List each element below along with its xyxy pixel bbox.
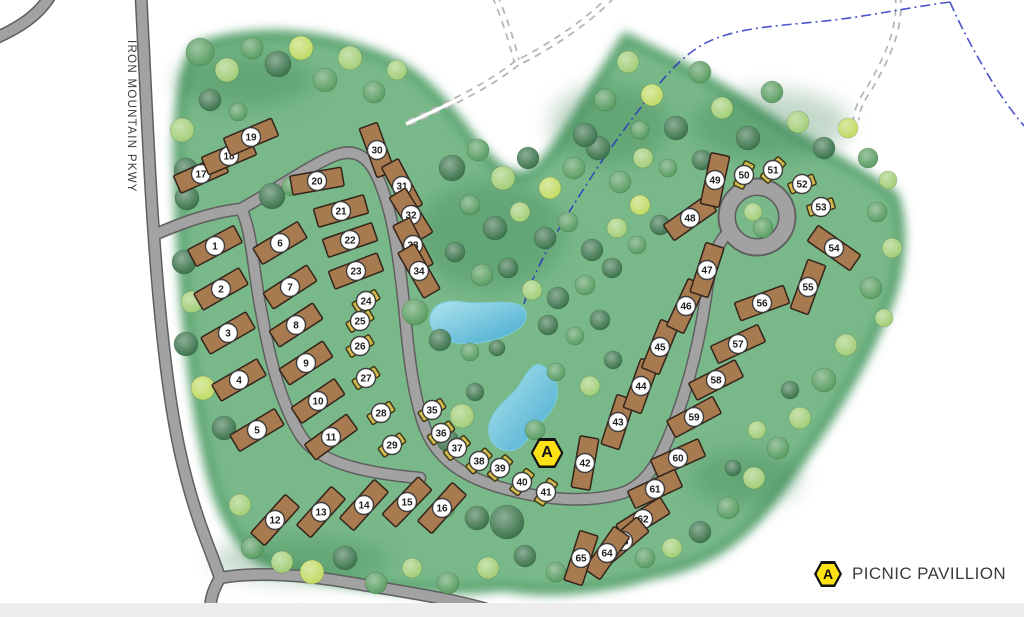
site-number: 13 [315, 508, 327, 519]
tree [628, 236, 646, 254]
site-number: 65 [575, 554, 587, 565]
tree [689, 521, 711, 543]
site-number: 41 [540, 488, 552, 499]
site-number: 12 [269, 516, 281, 527]
tree [717, 497, 739, 519]
site-number: 50 [738, 171, 750, 182]
site-number: 5 [254, 426, 260, 437]
tree [813, 137, 835, 159]
tree [662, 538, 682, 558]
site-number: 43 [612, 418, 624, 429]
tree [781, 381, 799, 399]
stream [950, 2, 1024, 128]
site-number: 64 [601, 549, 613, 560]
tree [450, 404, 474, 428]
tree [229, 103, 247, 121]
tree [594, 89, 616, 111]
site-number: 44 [635, 382, 647, 393]
site-number: 16 [436, 504, 448, 515]
site-number: 2 [218, 285, 224, 296]
tree [659, 159, 677, 177]
site-number: 7 [287, 283, 293, 294]
tree [300, 560, 324, 584]
tree [609, 171, 631, 193]
tree [607, 218, 627, 238]
tree [229, 494, 251, 516]
tree [867, 202, 887, 222]
tree [534, 227, 556, 249]
site-number: 9 [303, 359, 309, 370]
site-number: 60 [672, 454, 684, 465]
tree [617, 51, 639, 73]
tree [882, 238, 902, 258]
tree [471, 264, 493, 286]
tree [514, 545, 536, 567]
tree [489, 340, 505, 356]
site-number: 28 [375, 409, 387, 420]
site-number: 21 [335, 207, 347, 218]
site-number: 22 [344, 236, 356, 247]
site-number: 25 [354, 317, 366, 328]
site-number: 59 [688, 413, 700, 424]
tree [365, 572, 387, 594]
tree [753, 218, 773, 238]
tree [477, 557, 499, 579]
tree [437, 572, 459, 594]
tree [860, 277, 882, 299]
site-number: 58 [710, 376, 722, 387]
tree [575, 275, 595, 295]
tree [466, 383, 484, 401]
tree [875, 309, 893, 327]
tree [313, 68, 337, 92]
tree [635, 548, 655, 568]
tree [641, 84, 663, 106]
legend-label: PICNIC PAVILLION [852, 564, 1006, 584]
site-number: 40 [516, 478, 528, 489]
tree [525, 420, 545, 440]
tree [333, 546, 357, 570]
tree [602, 258, 622, 278]
tree [265, 51, 291, 77]
tree [767, 437, 789, 459]
tree [573, 123, 597, 147]
tree [191, 376, 215, 400]
tree [445, 242, 465, 262]
tree [743, 467, 765, 489]
site-number: 23 [350, 267, 362, 278]
tree [259, 183, 285, 209]
road [0, 0, 50, 38]
site-number: 61 [649, 485, 661, 496]
site-number: 37 [451, 444, 463, 455]
tree [241, 37, 263, 59]
tree [711, 97, 733, 119]
site-number: 39 [494, 464, 506, 475]
site-number: 17 [195, 170, 207, 181]
site-number: 53 [815, 203, 827, 214]
tree [566, 327, 584, 345]
tree [467, 139, 489, 161]
site-number: 14 [358, 501, 370, 512]
tree [736, 126, 760, 150]
tree [439, 155, 465, 181]
tree [725, 460, 741, 476]
site-number: 38 [473, 457, 485, 468]
tree [563, 157, 585, 179]
tree [363, 81, 385, 103]
tree [483, 216, 507, 240]
site-number: 48 [684, 214, 696, 225]
site-number: 29 [386, 441, 398, 452]
trail-core [856, 0, 898, 120]
tree [170, 118, 194, 142]
site-number: 4 [236, 376, 242, 387]
tree [835, 334, 857, 356]
tree [215, 58, 239, 82]
trail-core [517, 0, 612, 63]
tree [199, 89, 221, 111]
tree [402, 558, 422, 578]
legend-marker-letter: A [823, 566, 833, 582]
site-number: 54 [828, 244, 840, 255]
tree [787, 111, 809, 133]
tree [461, 343, 479, 361]
tree [761, 81, 783, 103]
site-number: 45 [654, 343, 666, 354]
tree [580, 376, 600, 396]
tree [590, 310, 610, 330]
site-number: 1 [212, 242, 218, 253]
site-number: 35 [426, 406, 438, 417]
tree [689, 61, 711, 83]
map-canvas: 1234567891011121314151617181920212223242… [0, 0, 1024, 617]
site-number: 49 [709, 176, 721, 187]
tree [174, 332, 198, 356]
site-number: 8 [293, 321, 299, 332]
site-number: 3 [225, 329, 231, 340]
road-label: IRON MOUNTAIN PKWY [125, 40, 137, 193]
site-number: 30 [371, 146, 383, 157]
tree [387, 60, 407, 80]
tree [460, 195, 480, 215]
tree [546, 562, 566, 582]
tree [604, 351, 622, 369]
site-number: 11 [326, 433, 337, 444]
tree [630, 195, 650, 215]
site-number: 42 [579, 459, 591, 470]
site-number: 52 [796, 180, 808, 191]
site-number: 6 [277, 239, 283, 250]
tree [429, 329, 451, 351]
tree [490, 505, 524, 539]
tree [491, 166, 515, 190]
tree [510, 202, 530, 222]
tree [558, 212, 578, 232]
campground-site-map: 1234567891011121314151617181920212223242… [0, 0, 1024, 617]
tree [186, 38, 214, 66]
site-number: 27 [360, 374, 372, 385]
site-number: 47 [701, 266, 713, 277]
site-number: 15 [401, 498, 413, 509]
site-number: 51 [767, 166, 779, 177]
tree [664, 116, 688, 140]
site-number: 56 [756, 299, 768, 310]
tree [402, 299, 428, 325]
site-number: 55 [802, 283, 814, 294]
site-number: 36 [435, 429, 447, 440]
site-number: 46 [680, 302, 692, 313]
footer-strip [0, 603, 1024, 617]
site-number: 57 [732, 340, 744, 351]
tree [522, 280, 542, 300]
tree [539, 177, 561, 199]
tree [517, 147, 539, 169]
tree [858, 148, 878, 168]
site-number: 34 [413, 267, 425, 278]
site-number: 20 [311, 177, 323, 188]
tree [633, 148, 653, 168]
tree [338, 46, 362, 70]
tree [789, 407, 811, 429]
tree [838, 118, 858, 138]
tree [547, 363, 565, 381]
pavilion-marker-letter: A [541, 444, 553, 462]
tree [879, 171, 897, 189]
site-number: 26 [354, 342, 366, 353]
tree [465, 506, 489, 530]
tree [748, 421, 766, 439]
tree [631, 121, 649, 139]
tree [289, 36, 313, 60]
tree [812, 368, 836, 392]
tree [271, 551, 293, 573]
tree [538, 315, 558, 335]
site-number: 24 [360, 297, 372, 308]
tree [547, 287, 569, 309]
site-number: 19 [245, 133, 257, 144]
tree [498, 258, 518, 278]
site-number: 10 [312, 397, 324, 408]
tree [581, 239, 603, 261]
